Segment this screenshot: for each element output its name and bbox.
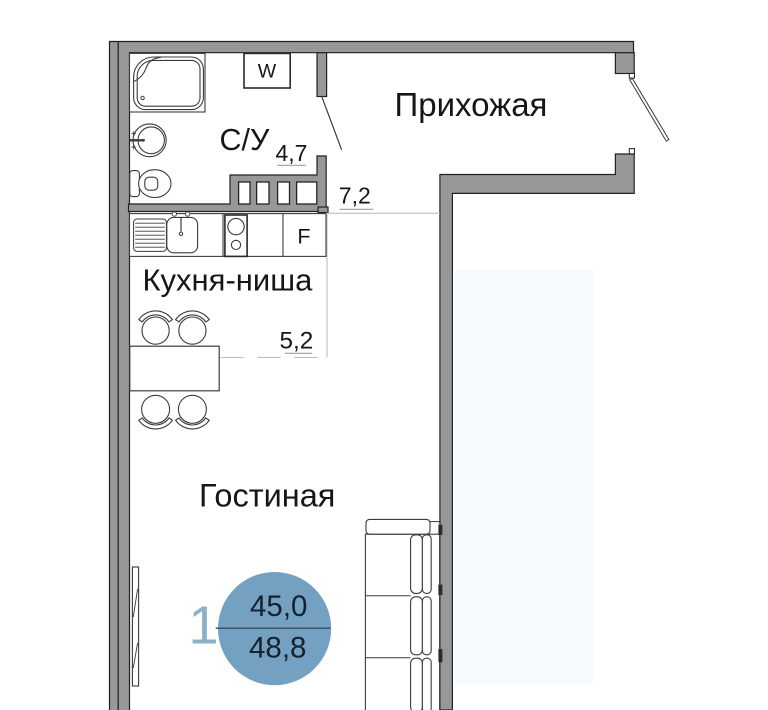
svg-text:Гостиная: Гостиная [199, 478, 335, 514]
svg-text:48,8: 48,8 [249, 631, 306, 664]
svg-text:7,2: 7,2 [339, 182, 371, 208]
svg-text:4,7: 4,7 [276, 140, 308, 166]
svg-text:5,2: 5,2 [280, 327, 314, 354]
svg-text:45,0: 45,0 [250, 590, 307, 623]
svg-text:С/У: С/У [220, 123, 271, 157]
svg-text:W: W [258, 61, 277, 83]
svg-text:F: F [297, 225, 310, 249]
svg-text:1: 1 [189, 596, 219, 656]
svg-text:Прихожая: Прихожая [395, 86, 548, 123]
svg-text:Кухня-ниша: Кухня-ниша [143, 263, 314, 298]
